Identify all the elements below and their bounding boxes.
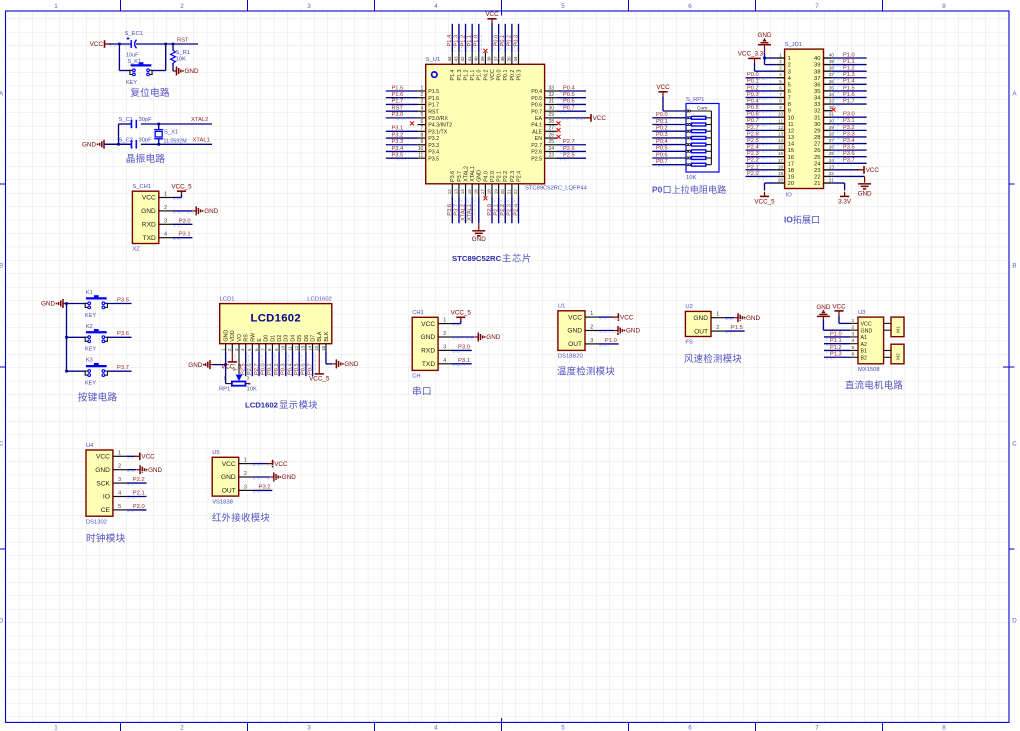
svg-text:VCC: VCC: [141, 454, 155, 461]
svg-text:34: 34: [513, 56, 518, 62]
svg-text:VDD: VDD: [230, 330, 236, 341]
svg-text:P1.2: P1.2: [830, 345, 842, 351]
svg-text:4: 4: [434, 725, 438, 731]
svg-text:2: 2: [443, 331, 446, 337]
svg-text:2: 2: [180, 3, 184, 10]
svg-text:P1.0: P1.0: [477, 70, 483, 81]
svg-text:21: 21: [829, 178, 835, 183]
svg-text:GND: GND: [626, 328, 640, 335]
svg-text:B1: B1: [861, 349, 868, 355]
svg-text:D7: D7: [310, 335, 316, 342]
svg-text:P3.1/TX: P3.1/TX: [428, 129, 448, 135]
svg-text:1: 1: [244, 458, 247, 464]
svg-text:36: 36: [500, 56, 505, 62]
svg-text:5: 5: [788, 82, 791, 88]
svg-text:GND: GND: [221, 474, 236, 481]
svg-text:42: 42: [460, 56, 465, 62]
svg-text:B: B: [1012, 262, 1016, 269]
svg-text:Com: Com: [697, 105, 707, 111]
svg-text:GND: GND: [758, 32, 772, 39]
svg-text:GND: GND: [82, 142, 96, 149]
svg-text:8: 8: [942, 725, 946, 731]
svg-text:17: 17: [778, 158, 784, 163]
svg-text:33: 33: [549, 85, 555, 91]
svg-text:25: 25: [814, 155, 820, 161]
svg-text:38: 38: [814, 69, 820, 75]
svg-text:P1.3: P1.3: [843, 72, 855, 78]
svg-text:P2.7: P2.7: [531, 143, 542, 149]
svg-text:P1.4: P1.4: [450, 70, 456, 81]
svg-text:5: 5: [561, 3, 565, 10]
svg-text:LCD1: LCD1: [220, 297, 235, 303]
svg-text:6: 6: [788, 89, 791, 95]
svg-text:XTAL2: XTAL2: [463, 166, 469, 182]
svg-text:16: 16: [321, 345, 326, 351]
svg-text:10uF: 10uF: [126, 52, 139, 58]
svg-text:25: 25: [549, 139, 555, 145]
svg-text:RST: RST: [177, 37, 189, 43]
svg-text:P0.1: P0.1: [267, 363, 273, 375]
svg-text:P4.0: P4.0: [483, 171, 489, 182]
svg-text:2: 2: [788, 63, 791, 69]
svg-text:U4: U4: [86, 443, 94, 449]
svg-text:GND: GND: [141, 208, 156, 215]
svg-text:VCC: VCC: [421, 321, 435, 328]
svg-text:P0.2: P0.2: [510, 70, 516, 81]
svg-text:8: 8: [942, 3, 946, 10]
svg-text:IO: IO: [786, 193, 793, 199]
svg-text:P2.7: P2.7: [747, 125, 759, 131]
svg-text:P0.6: P0.6: [747, 112, 759, 118]
svg-text:P0.3: P0.3: [656, 132, 668, 138]
svg-text:主芯片: 主芯片: [502, 253, 532, 264]
svg-text:GND: GND: [188, 362, 202, 369]
svg-text:30pF: 30pF: [139, 138, 153, 144]
svg-text:2: 2: [118, 464, 121, 470]
svg-text:S_RP1: S_RP1: [686, 97, 704, 103]
svg-text:8: 8: [788, 102, 791, 108]
svg-text:GND: GND: [420, 334, 435, 341]
svg-text:GND: GND: [344, 361, 358, 368]
svg-text:3: 3: [421, 99, 424, 105]
svg-text:D6: D6: [304, 335, 310, 342]
svg-text:1: 1: [118, 450, 121, 456]
svg-text:VCC: VCC: [832, 303, 846, 310]
svg-text:P0.7: P0.7: [656, 159, 668, 165]
svg-text:P2.3: P2.3: [510, 171, 516, 182]
svg-text:14: 14: [307, 345, 312, 351]
svg-text:GND: GND: [185, 68, 199, 75]
svg-text:XTAL1: XTAL1: [470, 166, 476, 182]
svg-text:VCC: VCC: [90, 41, 104, 48]
svg-text:P2.6: P2.6: [747, 131, 759, 137]
svg-text:P1.3: P1.3: [454, 35, 460, 47]
svg-text:IO: IO: [103, 494, 110, 501]
svg-text:P0.5: P0.5: [531, 96, 542, 102]
svg-text:9: 9: [779, 105, 782, 110]
svg-text:1: 1: [224, 376, 227, 381]
svg-text:34: 34: [814, 96, 821, 102]
svg-text:P3.5: P3.5: [428, 156, 439, 162]
svg-text:VCC: VCC: [866, 167, 880, 174]
svg-text:P1.1: P1.1: [467, 35, 473, 47]
svg-text:LCD1602: LCD1602: [251, 313, 301, 325]
svg-text:XTAL2: XTAL2: [191, 117, 208, 123]
svg-text:XTAL2: XTAL2: [460, 204, 466, 221]
svg-text:P2.4: P2.4: [747, 145, 759, 151]
svg-text:2: 2: [164, 205, 167, 211]
svg-text:D0: D0: [264, 335, 270, 342]
svg-text:VCC: VCC: [485, 11, 499, 18]
svg-text:P0.3: P0.3: [281, 363, 287, 375]
svg-text:P2.6: P2.6: [531, 150, 542, 156]
svg-text:A2: A2: [861, 342, 868, 348]
svg-text:P1.0: P1.0: [605, 338, 617, 344]
svg-text:4: 4: [779, 72, 782, 77]
svg-text:26: 26: [829, 145, 835, 150]
svg-text:P0.5: P0.5: [563, 92, 575, 98]
svg-text:GND: GND: [95, 467, 110, 474]
svg-text:B2: B2: [861, 355, 868, 361]
svg-text:37: 37: [829, 72, 835, 77]
svg-text:VCC_5: VCC_5: [451, 310, 472, 317]
svg-text:12: 12: [778, 125, 784, 130]
svg-text:14: 14: [778, 138, 784, 143]
svg-text:P0.4: P0.4: [563, 85, 575, 91]
svg-text:37: 37: [493, 56, 498, 62]
svg-text:温度检测模块: 温度检测模块: [557, 366, 615, 377]
svg-text:5: 5: [421, 112, 424, 118]
svg-text:6: 6: [254, 348, 259, 351]
svg-text:1: 1: [788, 56, 791, 62]
svg-text:P3.1: P3.1: [179, 232, 191, 238]
svg-text:19: 19: [493, 189, 498, 195]
svg-text:3: 3: [164, 218, 167, 224]
svg-text:CH1: CH1: [412, 310, 424, 316]
svg-text:18: 18: [487, 189, 492, 195]
svg-text:P2.2: P2.2: [133, 477, 145, 483]
svg-text:U2: U2: [685, 304, 692, 310]
svg-text:U1: U1: [558, 304, 565, 310]
svg-text:13: 13: [788, 135, 794, 141]
svg-text:24: 24: [814, 161, 821, 167]
svg-text:6: 6: [688, 725, 692, 731]
svg-text:CH: CH: [412, 374, 420, 380]
svg-text:2: 2: [421, 92, 424, 98]
svg-text:5: 5: [852, 345, 855, 351]
svg-text:P3.4: P3.4: [428, 150, 439, 156]
svg-text:P1.0: P1.0: [843, 52, 855, 58]
svg-text:S_U1: S_U1: [426, 57, 441, 63]
svg-text:P1.2: P1.2: [460, 35, 466, 47]
svg-text:P0.2: P0.2: [747, 85, 759, 91]
svg-text:4: 4: [852, 338, 855, 344]
svg-text:SCK: SCK: [96, 480, 110, 487]
svg-text:P2.1: P2.1: [497, 171, 503, 182]
svg-text:28: 28: [814, 135, 820, 141]
svg-text:P2.6: P2.6: [563, 146, 575, 152]
svg-text:S_R1: S_R1: [176, 50, 191, 56]
svg-text:7: 7: [788, 96, 791, 102]
svg-text:D: D: [0, 617, 4, 624]
svg-text:BLK: BLK: [324, 331, 330, 341]
svg-text:P3.6: P3.6: [843, 151, 855, 157]
svg-text:GND: GND: [148, 467, 162, 474]
svg-text:2: 2: [716, 325, 719, 331]
svg-text:P4.1: P4.1: [531, 123, 542, 129]
svg-text:VS1838: VS1838: [212, 499, 233, 505]
svg-text:P1.2: P1.2: [463, 70, 469, 81]
svg-text:6: 6: [779, 85, 782, 90]
svg-text:30: 30: [829, 118, 835, 123]
svg-text:6: 6: [852, 352, 855, 358]
svg-text:35: 35: [829, 85, 835, 90]
svg-text:25: 25: [829, 151, 835, 156]
svg-text:15: 15: [778, 145, 784, 150]
svg-text:1: 1: [852, 318, 855, 324]
svg-text:EN: EN: [535, 136, 543, 142]
svg-text:21: 21: [814, 181, 820, 187]
svg-text:1: 1: [54, 3, 58, 10]
svg-text:37: 37: [814, 76, 820, 82]
svg-text:1: 1: [443, 318, 446, 324]
svg-text:29: 29: [549, 112, 555, 118]
svg-text:TXD: TXD: [143, 235, 156, 242]
svg-text:40: 40: [814, 56, 820, 62]
svg-text:3: 3: [307, 3, 311, 10]
svg-text:40: 40: [829, 53, 835, 58]
svg-text:P0.0: P0.0: [497, 70, 503, 81]
svg-text:P2.4: P2.4: [516, 171, 522, 182]
svg-text:C: C: [1012, 440, 1017, 447]
svg-text:8: 8: [421, 132, 424, 138]
svg-text:5: 5: [561, 725, 565, 731]
svg-text:P0.4: P0.4: [531, 89, 542, 95]
svg-text:2: 2: [227, 348, 232, 351]
svg-text:GND: GND: [472, 236, 486, 243]
svg-text:30: 30: [549, 105, 555, 111]
svg-text:VCC_5: VCC_5: [754, 198, 775, 205]
svg-text:P1.0: P1.0: [830, 331, 842, 337]
svg-text:GND: GND: [746, 315, 760, 322]
svg-text:39: 39: [814, 63, 820, 69]
svg-text:P0.1: P0.1: [747, 79, 759, 85]
svg-text:红外接收模块: 红外接收模块: [212, 512, 270, 523]
svg-text:P1.5: P1.5: [843, 85, 855, 91]
svg-text:P0.3: P0.3: [513, 35, 519, 47]
svg-text:1: 1: [164, 192, 167, 198]
svg-text:10: 10: [778, 112, 784, 117]
svg-text:P0.6: P0.6: [563, 99, 575, 105]
svg-text:B: B: [0, 262, 3, 269]
svg-text:15: 15: [314, 345, 319, 351]
svg-text:30: 30: [814, 122, 820, 128]
svg-text:12: 12: [447, 189, 452, 195]
svg-text:P3.0/RX: P3.0/RX: [428, 116, 448, 122]
svg-text:34: 34: [829, 92, 835, 97]
svg-text:2: 2: [233, 367, 236, 372]
svg-text:VCC: VCC: [620, 314, 634, 321]
svg-text:22: 22: [814, 175, 820, 181]
svg-text:P0.7: P0.7: [307, 363, 313, 375]
svg-text:16: 16: [778, 151, 784, 156]
svg-text:26: 26: [549, 132, 555, 138]
svg-text:32: 32: [814, 109, 820, 115]
svg-text:2: 2: [852, 325, 855, 331]
svg-text:M1: M1: [896, 326, 902, 333]
svg-text:K3: K3: [86, 358, 93, 364]
svg-text:FS: FS: [685, 340, 693, 346]
svg-text:32: 32: [549, 92, 555, 98]
svg-text:20: 20: [788, 181, 794, 187]
svg-text:P3.2: P3.2: [843, 125, 855, 131]
svg-text:P3.6: P3.6: [450, 171, 456, 182]
svg-text:20: 20: [778, 178, 784, 183]
svg-text:P3.2: P3.2: [392, 132, 404, 138]
svg-text:9: 9: [421, 139, 424, 145]
svg-text:P3.7: P3.7: [117, 365, 129, 371]
svg-text:STC89C52RC_LQFP44: STC89C52RC_LQFP44: [525, 185, 588, 191]
svg-text:18: 18: [778, 164, 784, 169]
svg-text:P0.6: P0.6: [531, 103, 542, 109]
svg-text:S_C1: S_C1: [119, 117, 134, 123]
svg-text:VCC: VCC: [274, 461, 288, 468]
svg-text:36: 36: [814, 82, 820, 88]
svg-text:K2: K2: [86, 324, 93, 330]
svg-text:40: 40: [473, 56, 478, 62]
svg-text:RXD: RXD: [142, 222, 156, 229]
svg-text:30pF: 30pF: [139, 117, 153, 123]
svg-text:P2.7: P2.7: [563, 139, 575, 145]
svg-text:P0.4: P0.4: [656, 139, 668, 145]
svg-text:1: 1: [590, 311, 593, 317]
svg-text:P3.0: P3.0: [392, 112, 404, 118]
svg-text:3: 3: [234, 348, 239, 351]
svg-text:19: 19: [778, 171, 784, 176]
svg-text:拓展口: 拓展口: [793, 214, 820, 225]
svg-text:CE: CE: [101, 507, 111, 514]
svg-text:GND: GND: [861, 328, 873, 334]
svg-text:KEY: KEY: [85, 313, 96, 319]
svg-text:S_JD1: S_JD1: [785, 42, 802, 48]
svg-text:P3.0: P3.0: [179, 218, 191, 224]
svg-text:ALE: ALE: [532, 129, 542, 135]
svg-text:P1.1: P1.1: [470, 70, 476, 81]
svg-text:RXD: RXD: [421, 348, 435, 355]
svg-text:P3.2: P3.2: [428, 136, 439, 142]
svg-text:P0.5: P0.5: [656, 146, 668, 152]
svg-text:15: 15: [788, 148, 794, 154]
svg-text:P3.3: P3.3: [843, 131, 855, 137]
svg-text:4: 4: [118, 491, 121, 497]
svg-text:P2.0: P2.0: [133, 504, 145, 510]
svg-text:26: 26: [814, 148, 820, 154]
svg-text:RP1: RP1: [219, 387, 230, 393]
svg-text:44: 44: [447, 56, 452, 62]
svg-text:17: 17: [480, 189, 485, 195]
svg-text:STC89C52RC: STC89C52RC: [452, 254, 502, 263]
svg-text:3: 3: [118, 477, 121, 483]
svg-text:5: 5: [247, 348, 252, 351]
svg-text:P2.0: P2.0: [490, 171, 496, 182]
svg-text:33: 33: [829, 99, 835, 104]
svg-text:P0.3: P0.3: [516, 70, 522, 81]
svg-text:1: 1: [421, 85, 424, 91]
svg-text:7: 7: [815, 3, 819, 10]
svg-text:4: 4: [443, 358, 446, 364]
svg-text:21: 21: [507, 189, 512, 195]
svg-text:P0.5: P0.5: [747, 105, 759, 111]
svg-text:4: 4: [421, 105, 424, 111]
svg-text:GND: GND: [204, 208, 218, 215]
svg-text:P2.1: P2.1: [747, 164, 759, 170]
svg-text:6: 6: [421, 119, 424, 125]
svg-text:39: 39: [480, 56, 485, 62]
svg-text:2: 2: [590, 325, 593, 331]
svg-text:1: 1: [54, 725, 58, 731]
svg-text:11: 11: [788, 122, 794, 128]
svg-text:4: 4: [434, 3, 438, 10]
svg-text:P4.3/INT2: P4.3/INT2: [428, 123, 452, 129]
svg-text:2: 2: [180, 725, 184, 731]
svg-text:D3: D3: [284, 335, 290, 342]
svg-text:P3.3: P3.3: [428, 143, 439, 149]
svg-text:8: 8: [267, 348, 272, 351]
svg-text:3: 3: [852, 331, 855, 337]
svg-text:U3: U3: [858, 310, 865, 316]
svg-text:VCC: VCC: [593, 115, 607, 122]
svg-text:24: 24: [829, 158, 835, 163]
svg-text:A1: A1: [861, 335, 868, 341]
svg-text:D5: D5: [297, 335, 303, 342]
svg-text:P1.0: P1.0: [474, 35, 480, 47]
svg-text:时钟模块: 时钟模块: [86, 532, 126, 545]
svg-text:P2.5: P2.5: [531, 156, 542, 162]
svg-text:22: 22: [513, 189, 518, 195]
svg-text:P3.5: P3.5: [117, 297, 129, 303]
svg-text:GND: GND: [477, 170, 483, 182]
svg-text:VCC_3.3: VCC_3.3: [738, 51, 764, 58]
svg-text:显示模块: 显示模块: [279, 399, 318, 410]
svg-text:P2.2: P2.2: [503, 171, 509, 182]
svg-text:P2.0: P2.0: [747, 171, 759, 177]
svg-text:P3.2: P3.2: [259, 484, 271, 490]
svg-text:P0.1: P0.1: [503, 70, 509, 81]
svg-text:P1.7: P1.7: [843, 98, 855, 104]
svg-text:22: 22: [829, 171, 835, 176]
svg-text:P0.1: P0.1: [656, 119, 668, 125]
svg-text:E: E: [257, 338, 263, 342]
svg-text:KEY: KEY: [126, 80, 137, 86]
svg-text:16: 16: [788, 155, 794, 161]
svg-text:29: 29: [814, 128, 820, 134]
svg-text:P0.0: P0.0: [747, 72, 759, 78]
svg-text:P2.0: P2.0: [487, 204, 493, 216]
svg-text:P2.1: P2.1: [133, 491, 145, 497]
svg-text:S_C2: S_C2: [119, 138, 134, 144]
svg-text:13: 13: [778, 131, 784, 136]
svg-text:P0.5: P0.5: [294, 363, 300, 375]
svg-text:GND: GND: [567, 328, 582, 335]
svg-text:P4.2: P4.2: [483, 70, 489, 81]
svg-text:17: 17: [788, 161, 794, 167]
svg-text:复位电路: 复位电路: [130, 86, 170, 99]
svg-text:7: 7: [421, 126, 424, 132]
svg-text:RW: RW: [250, 333, 256, 342]
svg-text:P1.2: P1.2: [843, 66, 855, 72]
svg-text:VCC: VCC: [861, 322, 872, 328]
svg-text:P1.6: P1.6: [392, 92, 404, 98]
